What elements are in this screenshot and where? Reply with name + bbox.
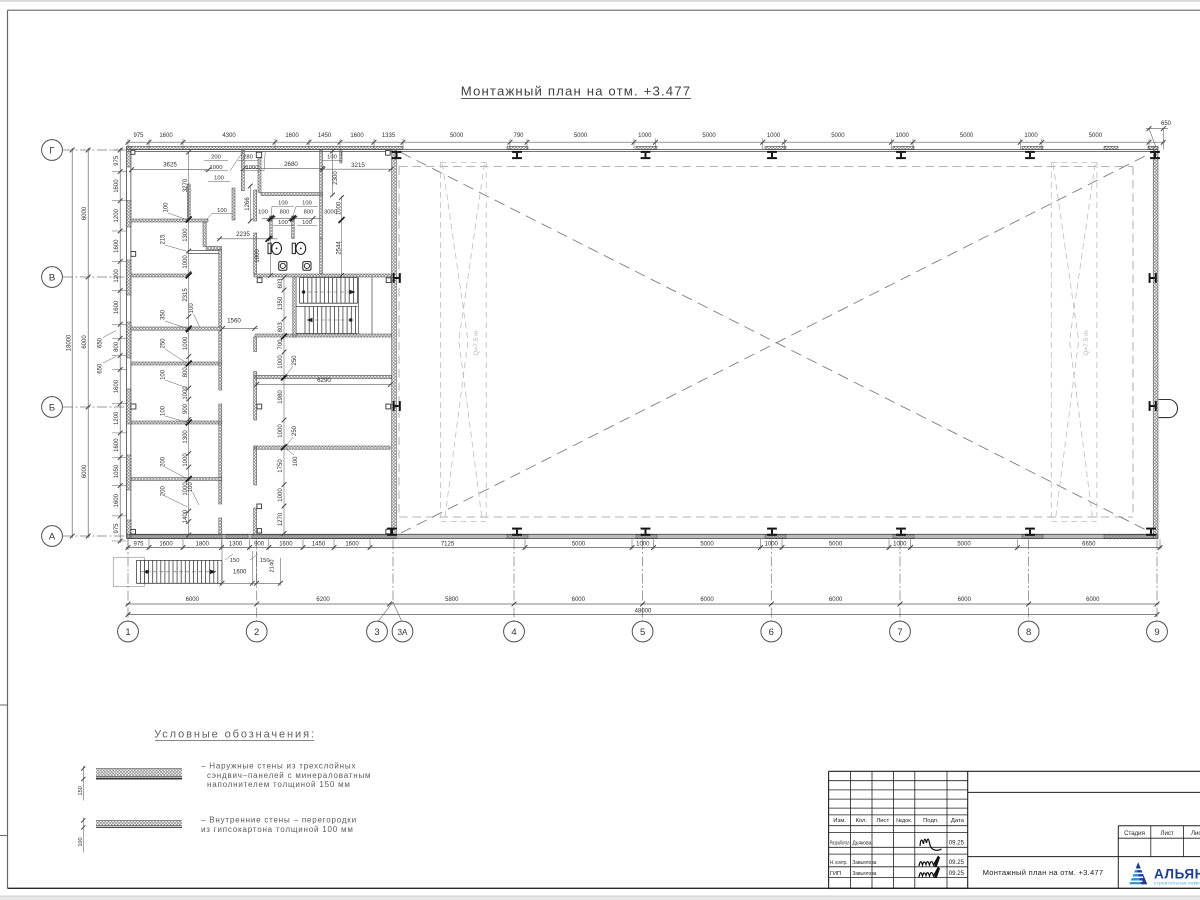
svg-text:1266: 1266	[245, 197, 251, 211]
svg-text:1000: 1000	[636, 541, 650, 547]
svg-text:4: 4	[511, 627, 516, 638]
svg-text:6000: 6000	[186, 597, 200, 603]
svg-text:48000: 48000	[635, 609, 652, 615]
svg-text:6000: 6000	[82, 464, 88, 478]
svg-text:– Наружные стены из трехслойны: – Наружные стены из трехслойных	[201, 762, 356, 771]
svg-text:Г: Г	[49, 145, 54, 156]
svg-text:3625: 3625	[163, 162, 177, 169]
svg-text:1000: 1000	[278, 488, 284, 502]
svg-text:215: 215	[160, 234, 166, 245]
svg-text:800: 800	[304, 210, 314, 216]
svg-text:2300: 2300	[333, 171, 339, 185]
svg-text:1000: 1000	[638, 133, 652, 139]
svg-text:Б: Б	[49, 402, 55, 413]
svg-text:100: 100	[188, 482, 194, 493]
svg-text:975: 975	[133, 133, 144, 139]
svg-text:100: 100	[214, 176, 224, 182]
svg-text:1050: 1050	[114, 464, 120, 478]
svg-text:100: 100	[160, 369, 166, 380]
svg-text:650: 650	[98, 363, 104, 374]
svg-text:Монтажный план на отм. +3.477: Монтажный план на отм. +3.477	[461, 84, 692, 99]
svg-text:сэндвич–панелей с минераловатн: сэндвич–панелей с минераловатным	[207, 771, 371, 780]
svg-text:1300: 1300	[183, 228, 189, 242]
svg-text:5000: 5000	[1089, 133, 1103, 139]
svg-text:из гипсокартона толщиной 100 м: из гипсокартона толщиной 100 мм	[201, 825, 354, 834]
svg-text:1600: 1600	[114, 300, 120, 314]
svg-text:6000: 6000	[1086, 597, 1100, 603]
svg-text:6200: 6200	[316, 597, 330, 603]
svg-text:1600: 1600	[345, 541, 359, 547]
svg-text:строительная компания: строительная компания	[1154, 881, 1200, 886]
svg-text:1400: 1400	[183, 509, 189, 523]
svg-text:6000: 6000	[700, 597, 714, 603]
svg-text:1000: 1000	[767, 133, 781, 139]
svg-text:1000: 1000	[183, 255, 189, 269]
svg-text:3: 3	[374, 627, 379, 638]
svg-text:1300: 1300	[229, 541, 243, 547]
svg-text:1600: 1600	[114, 493, 120, 507]
svg-text:1800: 1800	[255, 249, 261, 263]
svg-text:150: 150	[260, 558, 270, 564]
svg-text:2315: 2315	[183, 288, 189, 302]
svg-text:1600: 1600	[279, 541, 293, 547]
svg-text:№док.: №док.	[896, 818, 913, 824]
svg-text:5000: 5000	[957, 541, 971, 547]
svg-text:5000: 5000	[702, 133, 716, 139]
svg-text:800: 800	[183, 367, 189, 378]
svg-text:Лист: Лист	[1160, 830, 1173, 837]
svg-text:650: 650	[1161, 121, 1172, 127]
svg-text:1350: 1350	[278, 296, 284, 310]
svg-text:2: 2	[254, 627, 259, 638]
svg-text:100: 100	[258, 210, 268, 216]
svg-text:2544: 2544	[336, 241, 342, 255]
svg-text:1000: 1000	[765, 541, 779, 547]
svg-text:350: 350	[160, 309, 166, 320]
svg-text:800: 800	[280, 210, 290, 216]
svg-text:1600: 1600	[159, 541, 173, 547]
svg-text:2680: 2680	[284, 161, 298, 168]
svg-text:ГИП: ГИП	[830, 871, 841, 877]
svg-text:Разработал: Разработал	[830, 840, 850, 846]
svg-text:975: 975	[133, 541, 144, 547]
svg-text:3270: 3270	[183, 178, 189, 192]
svg-text:1600: 1600	[350, 133, 364, 139]
svg-text:3А: 3А	[397, 628, 408, 637]
svg-text:3000: 3000	[324, 210, 337, 216]
svg-text:А: А	[49, 531, 56, 542]
svg-text:2235: 2235	[236, 231, 250, 238]
svg-text:100: 100	[278, 220, 288, 226]
svg-text:700: 700	[278, 339, 284, 350]
svg-text:1000: 1000	[1024, 133, 1038, 139]
svg-text:100: 100	[278, 201, 288, 207]
svg-text:Дьякова: Дьякова	[852, 840, 872, 846]
svg-text:280: 280	[243, 155, 253, 161]
svg-text:наполнителем толщиной 150 мм: наполнителем толщиной 150 мм	[207, 780, 351, 789]
svg-text:250: 250	[160, 338, 166, 349]
svg-text:1000: 1000	[210, 165, 223, 171]
svg-text:Завьялова: Завьялова	[852, 871, 877, 877]
svg-text:100: 100	[164, 202, 170, 213]
svg-text:6: 6	[769, 627, 774, 638]
svg-text:1000: 1000	[183, 336, 189, 350]
svg-text:975: 975	[114, 155, 120, 166]
svg-text:1200: 1200	[114, 411, 120, 425]
svg-text:200: 200	[160, 486, 166, 497]
svg-text:Стадия: Стадия	[1124, 830, 1145, 837]
svg-text:1600: 1600	[159, 133, 173, 139]
svg-text:900: 900	[183, 403, 189, 414]
svg-text:6000: 6000	[82, 335, 88, 349]
svg-text:1600: 1600	[114, 179, 120, 193]
svg-text:5000: 5000	[829, 541, 843, 547]
svg-text:1600: 1600	[114, 438, 120, 452]
svg-text:5000: 5000	[960, 133, 974, 139]
svg-text:100: 100	[302, 220, 312, 226]
svg-text:5000: 5000	[574, 133, 588, 139]
svg-text:1600: 1600	[114, 379, 120, 393]
svg-text:5: 5	[640, 627, 645, 638]
svg-text:1200: 1200	[114, 208, 120, 222]
svg-text:Подп.: Подп.	[923, 818, 939, 824]
svg-text:1450: 1450	[318, 133, 332, 139]
svg-text:6650: 6650	[1082, 541, 1096, 547]
svg-text:975: 975	[114, 523, 120, 534]
svg-text:– Внутренние стены – перегород: – Внутренние стены – перегородки	[201, 816, 357, 825]
svg-text:5000: 5000	[831, 133, 845, 139]
svg-text:100: 100	[160, 405, 166, 416]
svg-text:Лист: Лист	[1191, 830, 1200, 837]
svg-text:1750: 1750	[278, 459, 284, 473]
svg-text:1200: 1200	[114, 269, 120, 283]
svg-text:1270: 1270	[278, 512, 284, 526]
svg-text:В: В	[49, 272, 55, 283]
svg-text:1450: 1450	[312, 541, 326, 547]
svg-text:Лист: Лист	[876, 818, 889, 824]
svg-text:5800: 5800	[445, 597, 459, 603]
svg-text:790: 790	[513, 133, 524, 139]
svg-text:1800: 1800	[196, 541, 210, 547]
svg-text:8: 8	[1026, 627, 1031, 638]
svg-text:250: 250	[292, 355, 298, 366]
svg-text:250: 250	[292, 425, 298, 436]
svg-text:5000: 5000	[572, 541, 586, 547]
svg-text:150: 150	[230, 558, 240, 564]
svg-text:1335: 1335	[382, 133, 396, 139]
svg-text:Монтажный план на отм. +3.477: Монтажный план на отм. +3.477	[983, 868, 1104, 877]
svg-text:650: 650	[98, 337, 104, 348]
svg-text:800: 800	[114, 341, 120, 352]
svg-text:1300: 1300	[183, 430, 189, 444]
svg-text:5000: 5000	[450, 133, 464, 139]
svg-text:09.25: 09.25	[949, 839, 965, 846]
svg-text:1000: 1000	[183, 453, 189, 467]
svg-text:200: 200	[160, 456, 166, 467]
svg-text:200: 200	[211, 155, 221, 161]
svg-text:09.25: 09.25	[949, 870, 965, 877]
svg-text:100: 100	[189, 303, 195, 314]
svg-text:5000: 5000	[700, 541, 714, 547]
svg-text:Условные обозначения:: Условные обозначения:	[154, 729, 316, 741]
svg-text:7: 7	[897, 627, 902, 638]
svg-text:100: 100	[327, 155, 337, 161]
svg-text:6290: 6290	[317, 377, 331, 384]
svg-text:1560: 1560	[227, 318, 241, 325]
svg-text:6000: 6000	[572, 597, 586, 603]
svg-text:Изм.: Изм.	[833, 818, 846, 824]
svg-text:1000: 1000	[278, 355, 284, 369]
svg-text:АЛЬЯНС: АЛЬЯНС	[1154, 867, 1200, 882]
svg-text:1600: 1600	[233, 570, 247, 576]
svg-text:Дата: Дата	[951, 818, 965, 824]
svg-text:1600: 1600	[285, 133, 299, 139]
svg-text:Н. контр.: Н. контр.	[830, 860, 848, 866]
svg-text:100: 100	[293, 456, 299, 467]
svg-text:Q=7.5 m: Q=7.5 m	[1083, 330, 1090, 355]
svg-text:900: 900	[254, 541, 265, 547]
svg-text:3215: 3215	[351, 162, 365, 169]
svg-text:1000: 1000	[336, 201, 342, 215]
svg-text:Завьялова: Завьялова	[852, 860, 877, 866]
svg-text:150: 150	[78, 786, 84, 795]
svg-text:100: 100	[217, 208, 227, 214]
svg-text:1600: 1600	[114, 239, 120, 253]
svg-text:09.25: 09.25	[949, 859, 965, 866]
svg-text:Q=7.5 m: Q=7.5 m	[473, 330, 480, 355]
svg-text:9: 9	[1154, 627, 1159, 638]
svg-text:1980: 1980	[278, 390, 284, 404]
svg-text:4300: 4300	[222, 133, 236, 139]
svg-text:6000: 6000	[958, 597, 972, 603]
svg-text:7125: 7125	[441, 541, 455, 547]
svg-text:1000: 1000	[278, 424, 284, 438]
svg-text:1000: 1000	[896, 133, 910, 139]
svg-text:6000: 6000	[82, 206, 88, 220]
svg-text:18000: 18000	[66, 334, 72, 351]
svg-text:1: 1	[125, 627, 130, 638]
svg-text:1000: 1000	[893, 541, 907, 547]
svg-text:100: 100	[302, 201, 312, 207]
svg-text:6000: 6000	[829, 597, 843, 603]
svg-text:100: 100	[78, 837, 84, 846]
svg-text:Кол.: Кол.	[855, 818, 867, 824]
svg-text:1000: 1000	[246, 165, 259, 171]
svg-text:803: 803	[278, 322, 284, 333]
svg-text:603: 603	[278, 278, 284, 289]
svg-text:2140: 2140	[270, 560, 276, 573]
